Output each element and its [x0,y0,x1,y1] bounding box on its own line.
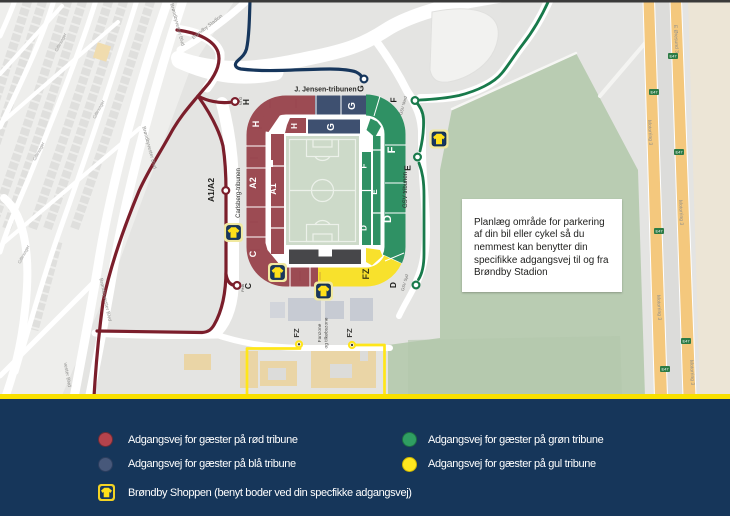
svg-text:GSV-tribunen: GSV-tribunen [403,172,409,208]
svg-text:A2: A2 [248,177,258,189]
svg-text:H: H [290,123,299,129]
svg-text:G: G [326,123,337,131]
svg-text:og tilkøbszone: og tilkøbszone [324,317,330,348]
svg-text:E47: E47 [650,90,658,95]
svg-text:F: F [360,163,369,168]
svg-text:F: F [389,97,399,102]
svg-text:E47: E47 [669,54,677,59]
svg-text:A1/A2: A1/A2 [206,178,216,202]
svg-text:A1: A1 [268,183,278,195]
svg-text:D: D [360,225,369,231]
svg-text:E: E [403,165,413,171]
svg-text:FZ: FZ [361,268,371,279]
svg-text:H: H [251,121,261,128]
svg-text:E47: E47 [661,367,669,372]
svg-text:Carlsberg-tribunen: Carlsberg-tribunen [236,168,242,218]
svg-text:D: D [382,215,394,223]
svg-text:C: C [248,250,258,257]
svg-text:E: E [370,189,379,195]
svg-text:F: F [386,146,398,153]
svg-text:E47: E47 [655,229,663,234]
svg-text:Fanzone: Fanzone [317,323,323,342]
svg-text:G: G [356,85,366,92]
svg-text:E47: E47 [682,339,690,344]
svg-text:FZ: FZ [292,328,301,338]
svg-text:FZ: FZ [345,328,354,338]
svg-text:G: G [347,102,358,110]
svg-text:J. Jensen-tribunen: J. Jensen-tribunen [294,87,356,94]
svg-text:D: D [388,282,398,288]
svg-text:E47: E47 [675,150,683,155]
